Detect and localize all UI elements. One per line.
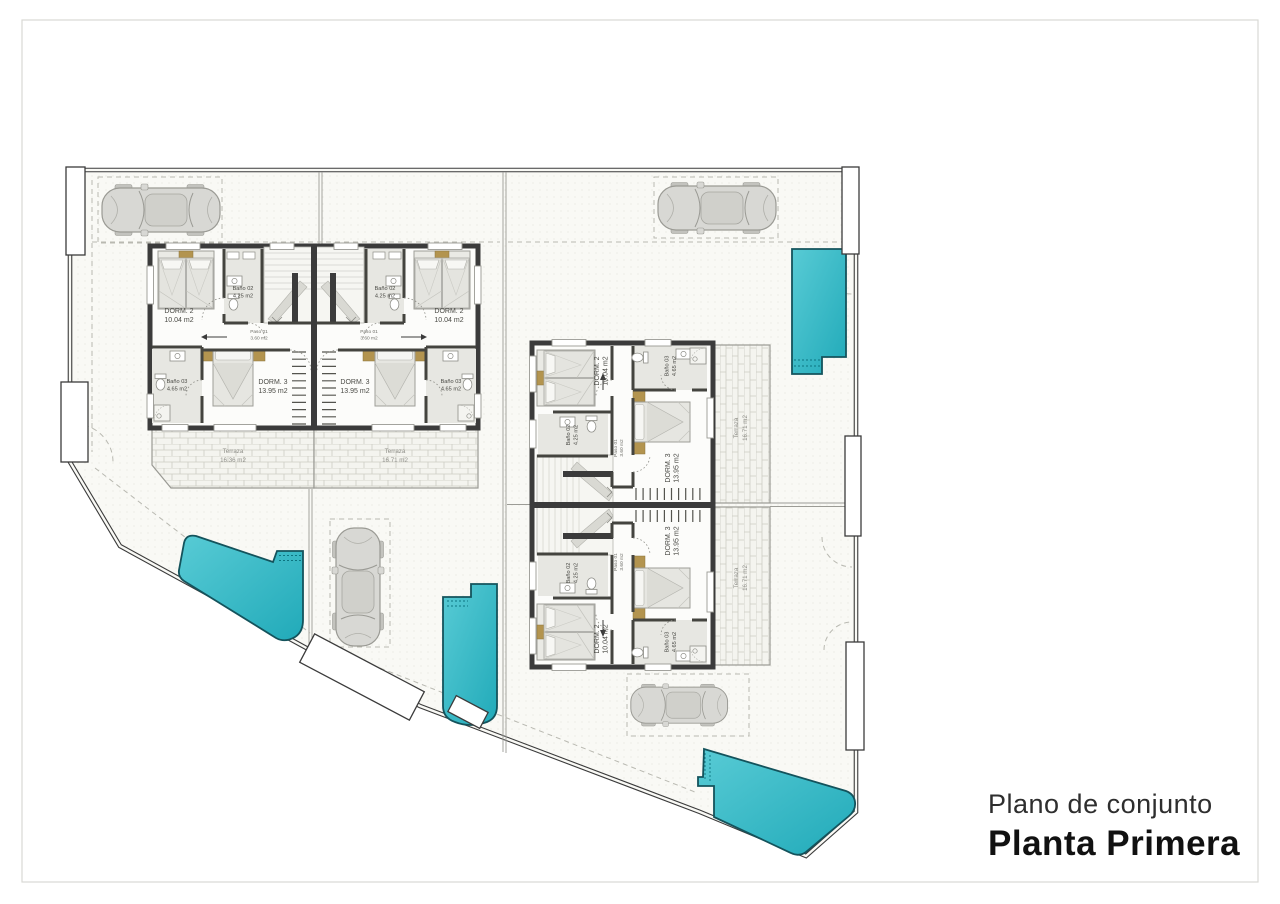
party-wall <box>311 246 317 428</box>
room-label: Baño 03 <box>665 356 671 377</box>
room-label: Baño 02 <box>233 286 254 292</box>
pool-east <box>792 249 846 374</box>
pool-southwest <box>179 536 303 641</box>
room-area: 10.04 m2 <box>603 624 610 653</box>
room-label: Baño 02 <box>375 286 396 292</box>
twin-bed <box>158 251 214 309</box>
room-area: 4.25 m2 <box>574 563 580 583</box>
room-label: Baño 03 <box>665 632 671 653</box>
room-label: DORM. 2 <box>164 308 193 315</box>
plan-subtitle: Plano de conjunto <box>988 789 1213 819</box>
room-label: DORM. 2 <box>434 308 463 315</box>
room-label: Paso 01 <box>360 329 378 335</box>
room-area: 4.25 m2 <box>375 294 395 300</box>
room-area: 3.60 m2 <box>250 336 268 342</box>
drawing-sheet: DORM. 2 10.04 m2 Baño 02 4.25 m2 Paso 01… <box>0 0 1280 904</box>
room-area: 4.65 m2 <box>441 387 461 393</box>
plan-title: Planta Primera <box>988 824 1240 863</box>
room-label: DORM. 3 <box>665 453 672 482</box>
room-label: Baño 03 <box>167 379 188 385</box>
room-area: 4.25 m2 <box>574 425 580 445</box>
room-label: Baño 02 <box>566 425 572 446</box>
room-area: 10.04 m2 <box>164 317 193 324</box>
room-area: 4.65 m2 <box>672 356 678 376</box>
room-label: DORM. 3 <box>258 379 287 386</box>
room-area: 13.95 m2 <box>674 526 681 555</box>
title-block: Plano de conjunto Planta Primera <box>988 789 1240 863</box>
staircase <box>264 247 314 323</box>
room-label: DORM. 2 <box>594 356 601 385</box>
toilet-fixture <box>586 416 597 432</box>
car-center <box>332 528 384 646</box>
terrace-area: 16.71 m2 <box>742 415 749 441</box>
sink-fixture <box>170 351 185 361</box>
terrace-area: 16.71 m2 <box>382 457 408 464</box>
terrace-label: Terraza <box>223 448 244 455</box>
room-area: 4.65 m2 <box>167 387 187 393</box>
terrace-area: 16.36 m2 <box>220 457 246 464</box>
room-area: 3.60 m2 <box>619 439 625 457</box>
shower-fixture <box>690 348 706 364</box>
room-area: 10.04 m2 <box>434 317 463 324</box>
room-area: 3.60 m2 <box>619 553 625 571</box>
room-area: 4.65 m2 <box>672 632 678 652</box>
right-building <box>530 340 714 671</box>
left-building <box>147 243 481 431</box>
room-area: 3.60 m2 <box>360 336 378 342</box>
toilet-fixture <box>632 352 648 363</box>
party-wall <box>532 502 713 508</box>
room-label: Paso 01 <box>250 329 268 335</box>
sink-fixture <box>227 276 242 286</box>
room-label: DORM. 2 <box>594 624 601 653</box>
car-south <box>631 684 728 727</box>
twin-bed <box>537 350 595 406</box>
room-label: Baño 03 <box>441 379 462 385</box>
car-northwest <box>102 184 220 236</box>
room-label: Paso 01 <box>613 553 619 571</box>
room-area: 13.95 m2 <box>674 453 681 482</box>
terrace-label: Terraza <box>733 567 740 588</box>
shower-fixture <box>154 405 170 421</box>
terrace-label: Terraza <box>733 417 740 438</box>
car-northeast <box>658 182 776 234</box>
room-label: DORM. 3 <box>340 379 369 386</box>
toilet-fixture <box>155 374 166 390</box>
room-label: Baño 02 <box>566 563 572 584</box>
terrace-area: 16.71 m2 <box>742 565 749 591</box>
room-area: 13.95 m2 <box>340 388 369 395</box>
room-area: 13.95 m2 <box>258 388 287 395</box>
room-label: DORM. 3 <box>665 526 672 555</box>
room-area: 10.04 m2 <box>603 356 610 385</box>
sink-fixture <box>676 349 691 359</box>
room-area: 4.25 m2 <box>233 294 253 300</box>
staircase <box>537 455 613 505</box>
room-label: Paso 01 <box>613 439 619 457</box>
terrace-label: Terraza <box>385 448 406 455</box>
site-plan-svg: DORM. 2 10.04 m2 Baño 02 4.25 m2 Paso 01… <box>0 0 1280 904</box>
